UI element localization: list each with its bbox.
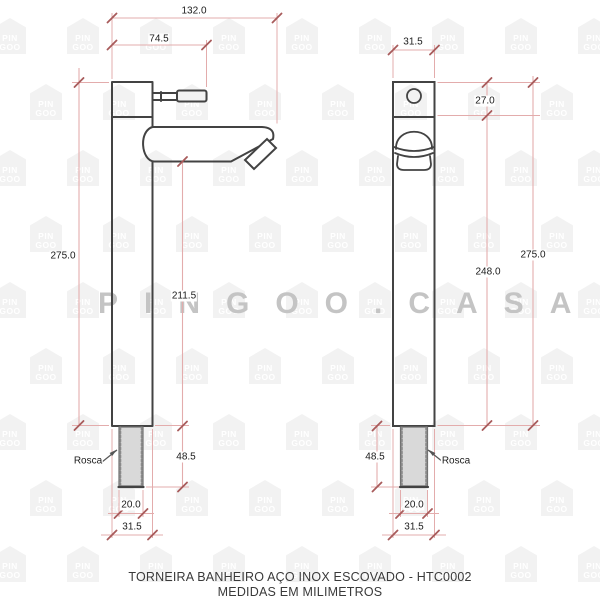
side-cap-height-label: 27.0	[474, 96, 495, 107]
faucet-body-side	[393, 82, 435, 426]
front-total-height-label: 275.0	[49, 251, 76, 262]
leader-lines	[102, 450, 443, 462]
handle-knob	[394, 132, 434, 170]
side-view	[393, 82, 435, 487]
side-body-width-label: 31.5	[402, 37, 423, 48]
dimension-drawing-page: PINGOOPINGOOPINGOOPINGOOPINGOOPINGOOPING…	[0, 0, 600, 600]
front-spout-reach-label: 74.5	[148, 34, 169, 45]
side-thread-length-label: 48.5	[364, 452, 385, 463]
front-thread-length-label: 48.5	[175, 452, 196, 463]
mounting-hole	[407, 89, 421, 103]
faucet-body-front	[112, 82, 153, 426]
front-thread-diameter-label: 20.0	[120, 500, 141, 511]
thread-front	[119, 427, 144, 487]
drawing-title: TORNEIRA BANHEIRO AÇO INOX ESCOVADO - HT…	[0, 570, 600, 584]
thread-side	[400, 427, 428, 487]
side-lower-height-label: 248.0	[474, 267, 501, 278]
front-spout-height-label: 211.5	[171, 291, 197, 302]
drawing-units-note: MEDIDAS EM MILIMETROS	[0, 585, 600, 599]
technical-drawing-svg	[0, 0, 600, 600]
handle-lever	[153, 91, 207, 102]
front-thread-name-label: Rosca	[73, 456, 103, 467]
front-view	[112, 82, 276, 487]
side-base-diameter-label: 31.5	[403, 522, 424, 533]
front-overall-width-label: 132.0	[180, 6, 207, 17]
aerator	[245, 139, 276, 169]
side-total-height-label: 275.0	[519, 250, 546, 261]
front-base-diameter-label: 31.5	[121, 522, 142, 533]
side-thread-diameter-label: 20.0	[403, 500, 424, 511]
side-thread-name-label: Rosca	[441, 456, 471, 467]
